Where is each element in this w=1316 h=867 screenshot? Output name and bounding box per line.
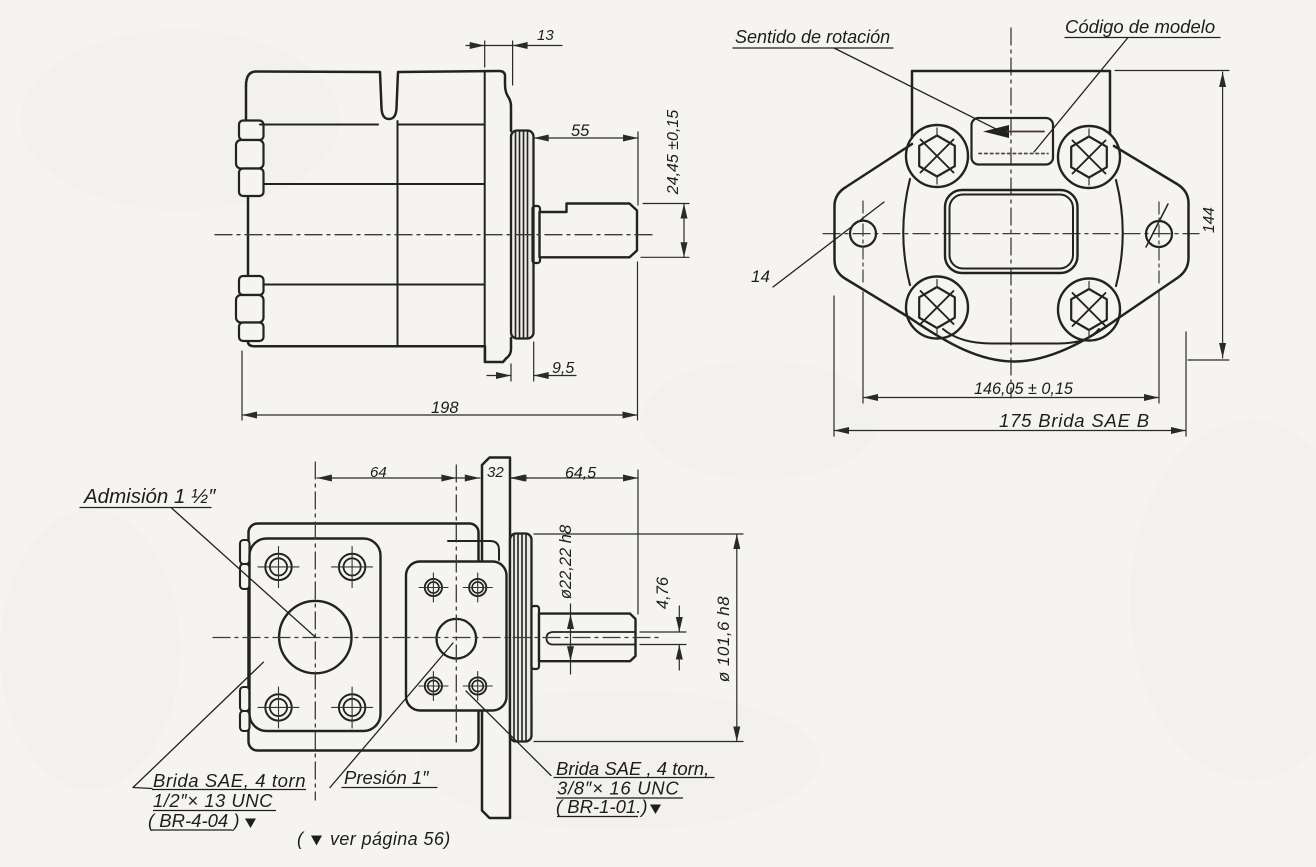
svg-text:175 Brida SAE B: 175 Brida SAE B — [999, 410, 1150, 431]
svg-text:( BR-4-04 ): ( BR-4-04 ) — [148, 810, 240, 831]
svg-text:Brida SAE, 4 torn: Brida SAE, 4 torn — [153, 770, 306, 791]
svg-text:Brida SAE , 4 torn,: Brida SAE , 4 torn, — [556, 758, 709, 779]
svg-text:ø 101,6 h8: ø 101,6 h8 — [714, 596, 733, 682]
svg-text:64,5: 64,5 — [565, 465, 596, 482]
svg-text:14: 14 — [751, 267, 770, 286]
svg-text:ver página 56): ver página 56) — [330, 829, 451, 849]
svg-text:146,05 ± 0,15: 146,05 ± 0,15 — [974, 380, 1074, 398]
svg-text:( BR-1-01.): ( BR-1-01.) — [556, 796, 648, 817]
svg-text:198: 198 — [431, 399, 459, 417]
svg-text:Sentido de rotación: Sentido de rotación — [735, 27, 890, 47]
svg-text:Presión 1″: Presión 1″ — [344, 767, 430, 788]
svg-text:ø22,22 h8: ø22,22 h8 — [557, 524, 575, 599]
svg-text:144: 144 — [1201, 207, 1218, 233]
svg-text:64: 64 — [370, 464, 387, 481]
svg-text:55: 55 — [571, 122, 590, 140]
svg-text:24,45 ±0,15: 24,45 ±0,15 — [665, 110, 682, 196]
svg-text:9,5: 9,5 — [552, 360, 574, 377]
svg-text:Código de modelo: Código de modelo — [1065, 16, 1215, 37]
svg-text:32: 32 — [487, 464, 504, 481]
svg-text:Admisión 1 ½″: Admisión 1 ½″ — [82, 485, 216, 508]
svg-text:13: 13 — [537, 27, 554, 44]
svg-text:4,76: 4,76 — [654, 576, 672, 609]
svg-text:1/2″× 13 UNC: 1/2″× 13 UNC — [153, 790, 273, 811]
